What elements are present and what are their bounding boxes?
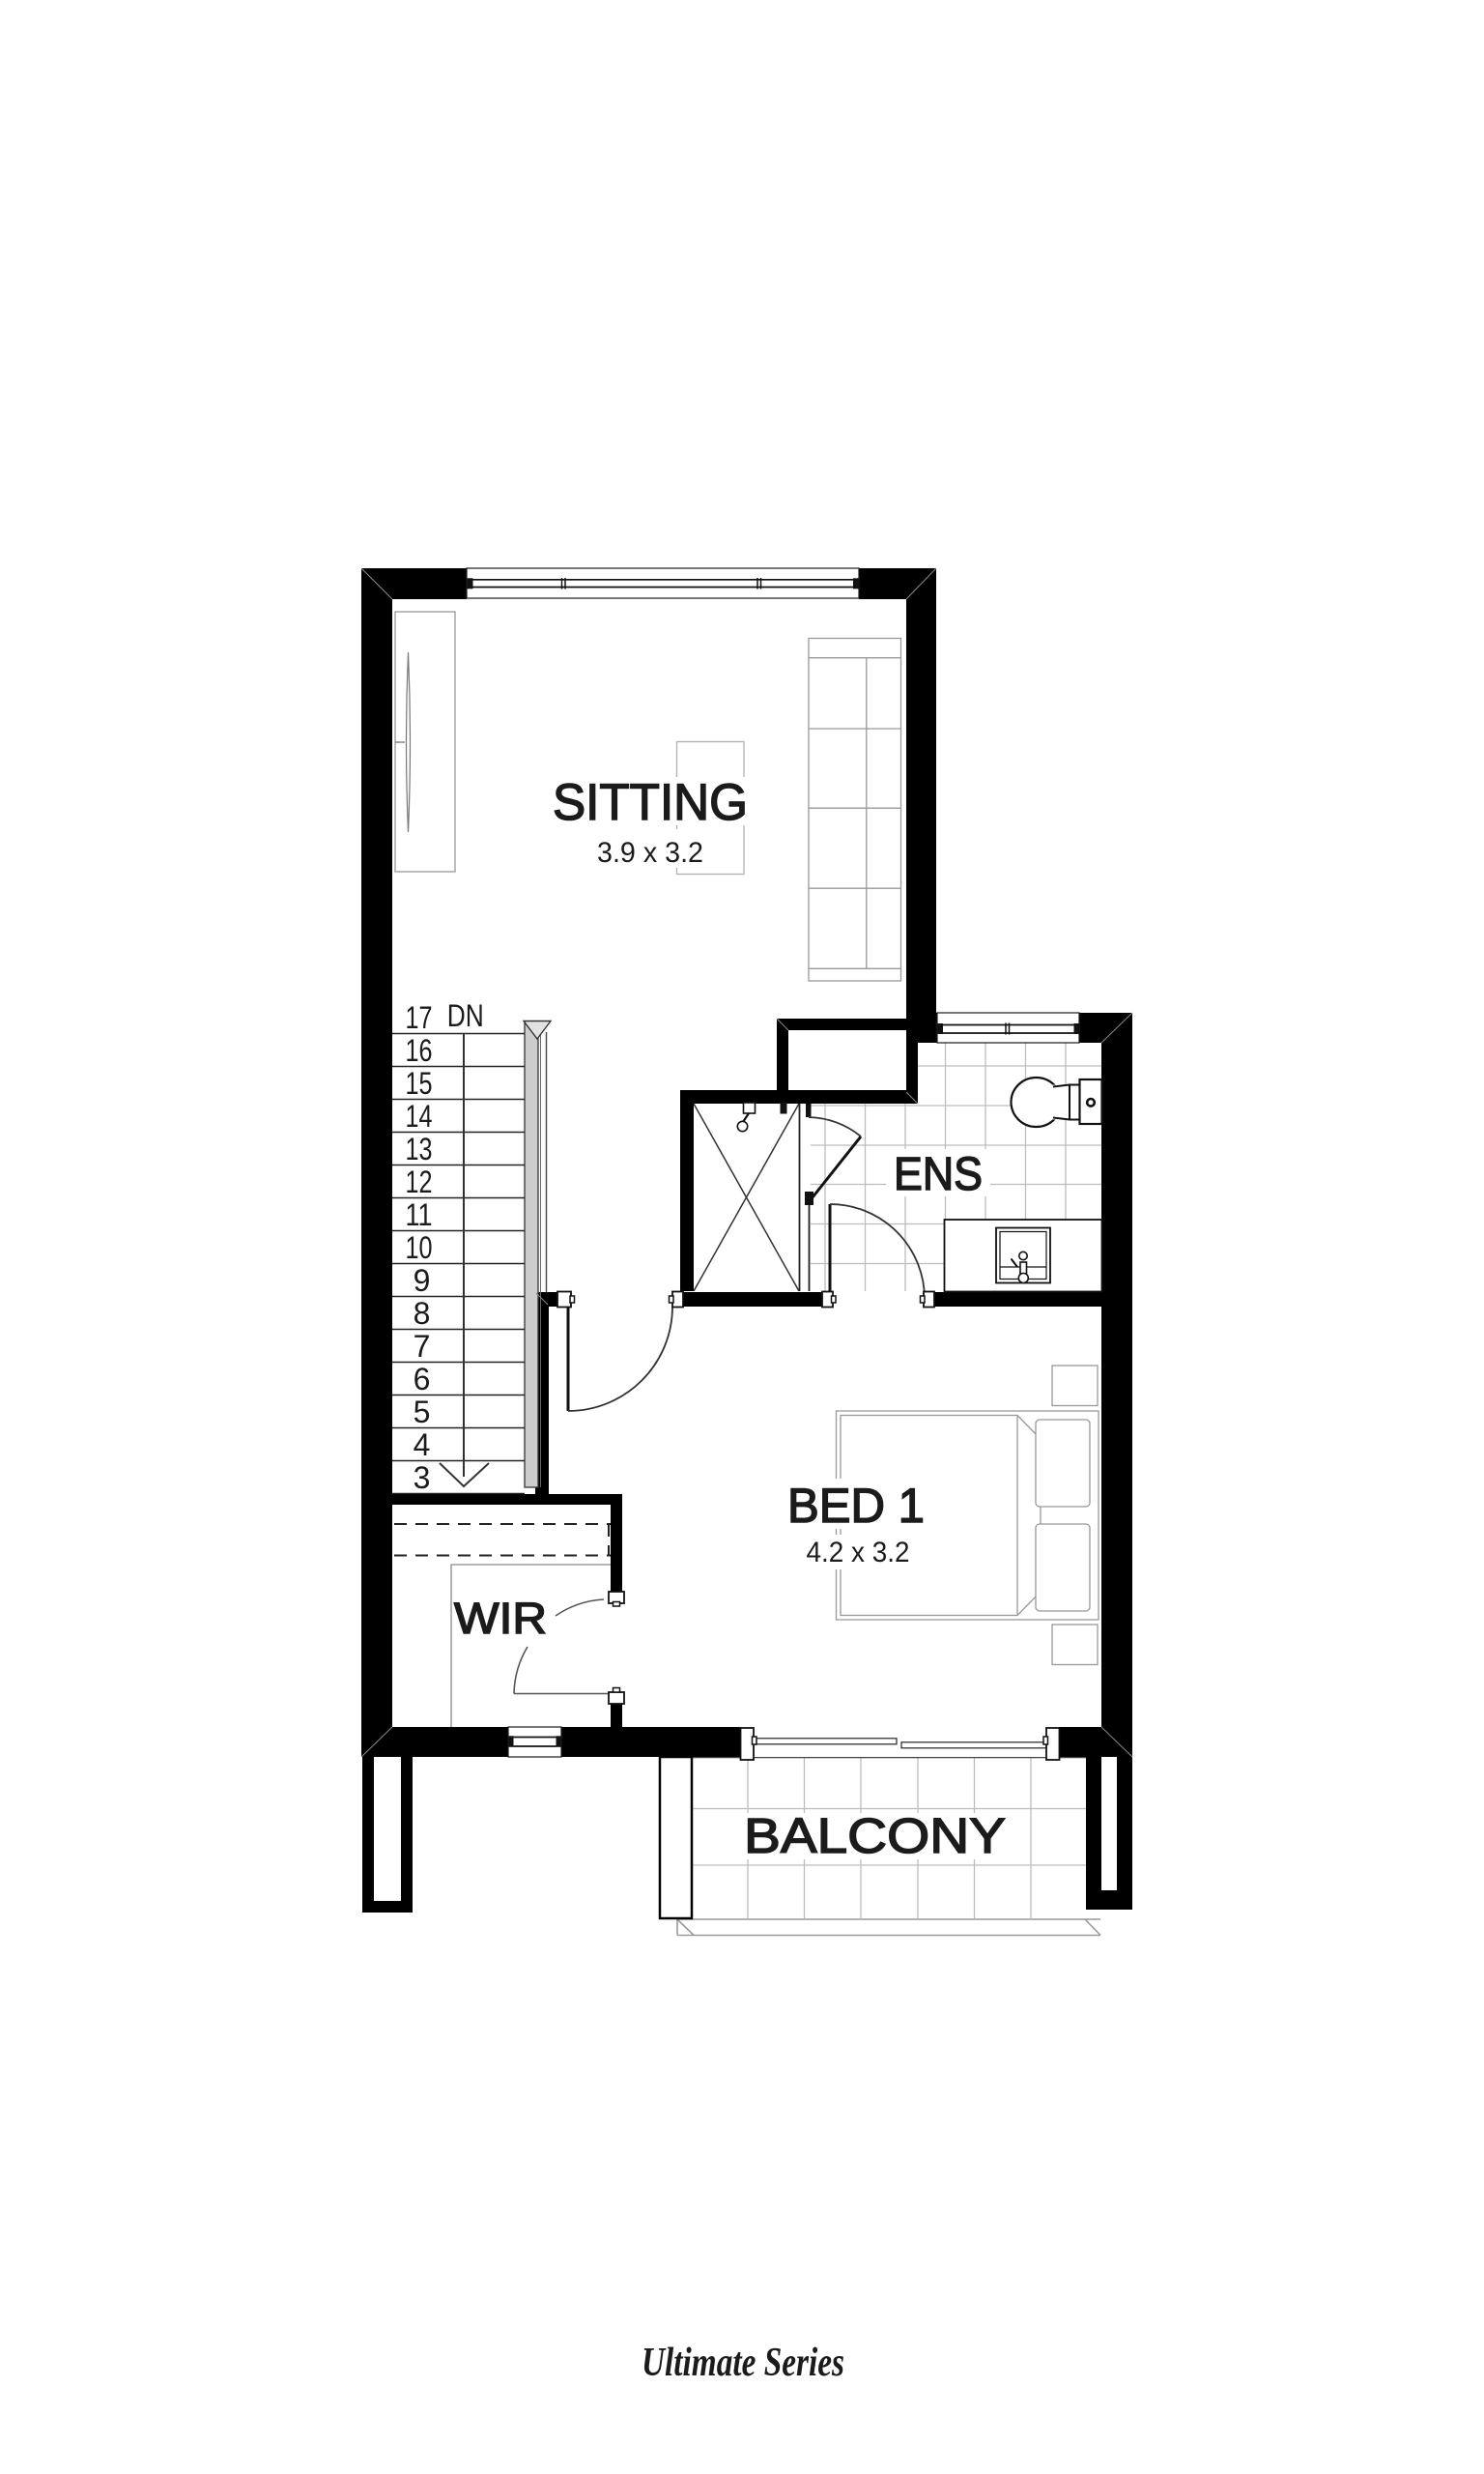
svg-text:4.2 x 3.2: 4.2 x 3.2 (807, 1537, 910, 1568)
svg-text:15: 15 (406, 1066, 433, 1101)
svg-text:7: 7 (414, 1329, 431, 1364)
svg-text:5: 5 (414, 1395, 431, 1429)
svg-text:8: 8 (414, 1296, 431, 1331)
svg-text:4: 4 (414, 1427, 431, 1462)
svg-text:3: 3 (414, 1460, 431, 1495)
svg-text:Ultimate Series: Ultimate Series (642, 2341, 844, 2385)
svg-text:16: 16 (406, 1033, 433, 1068)
svg-text:6: 6 (414, 1362, 431, 1396)
svg-text:10: 10 (406, 1230, 433, 1265)
svg-text:17: 17 (406, 1000, 433, 1035)
svg-text:SITTING: SITTING (553, 774, 748, 831)
svg-text:DN: DN (447, 998, 484, 1033)
svg-text:11: 11 (406, 1197, 433, 1232)
svg-text:9: 9 (414, 1263, 431, 1298)
svg-text:14: 14 (406, 1099, 433, 1134)
svg-text:BALCONY: BALCONY (744, 1808, 1006, 1863)
svg-text:13: 13 (406, 1132, 433, 1166)
svg-text:12: 12 (406, 1165, 433, 1199)
svg-text:3.9 x 3.2: 3.9 x 3.2 (597, 837, 703, 869)
svg-text:BED 1: BED 1 (787, 1479, 925, 1533)
svg-text:ENS: ENS (894, 1149, 983, 1200)
svg-text:WIR: WIR (454, 1594, 547, 1643)
